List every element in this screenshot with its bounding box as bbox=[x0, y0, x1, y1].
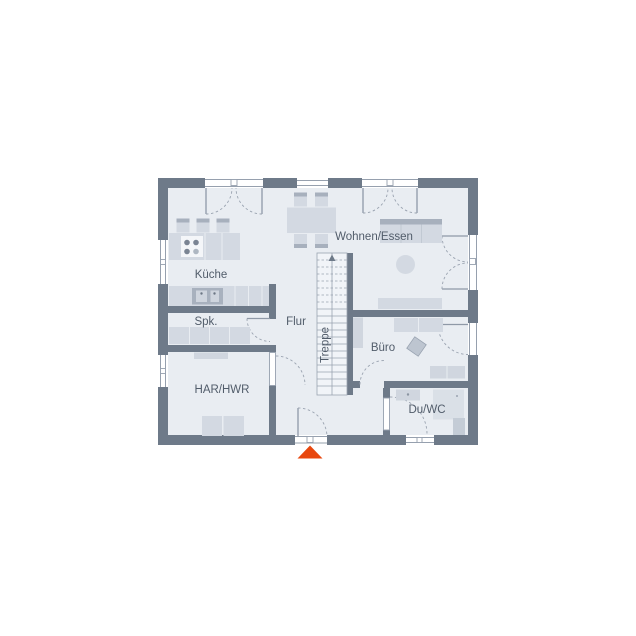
toilet-icon bbox=[453, 418, 465, 435]
window-left-kitchen bbox=[158, 240, 168, 284]
room-label-kueche: Küche bbox=[195, 269, 228, 281]
room-label-wohnen-essen: Wohnen/Essen bbox=[335, 231, 413, 243]
dining-table bbox=[287, 208, 336, 234]
floor-plan-canvas: Treppe bbox=[0, 0, 636, 636]
window-left-har bbox=[158, 355, 168, 387]
sideboard-living bbox=[378, 298, 442, 309]
room-label-treppe: Treppe bbox=[320, 327, 332, 363]
staircase: Treppe bbox=[317, 253, 347, 395]
room-label-spk: Spk. bbox=[194, 316, 217, 328]
round-rug bbox=[396, 255, 415, 274]
cooktop-icon bbox=[181, 236, 203, 257]
bar-stools bbox=[177, 219, 230, 233]
floor-plan-page: Treppe bbox=[0, 0, 636, 636]
room-label-flur: Flur bbox=[286, 316, 306, 328]
kitchen-island bbox=[169, 233, 240, 260]
room-label-har-hwr: HAR/HWR bbox=[195, 384, 250, 396]
bathroom-sink-icon bbox=[396, 390, 420, 401]
room-label-buero: Büro bbox=[371, 342, 395, 354]
room-label-du-wc: Du/WC bbox=[408, 404, 445, 416]
window-top-center bbox=[297, 178, 328, 188]
office-desk bbox=[394, 318, 443, 332]
pantry-shelf bbox=[169, 327, 250, 344]
office-sideboard bbox=[430, 366, 465, 379]
office-shelf bbox=[353, 318, 363, 349]
har-shelf bbox=[194, 353, 228, 360]
window-bottom-duwc bbox=[406, 435, 434, 445]
kitchen-counter bbox=[169, 286, 269, 306]
